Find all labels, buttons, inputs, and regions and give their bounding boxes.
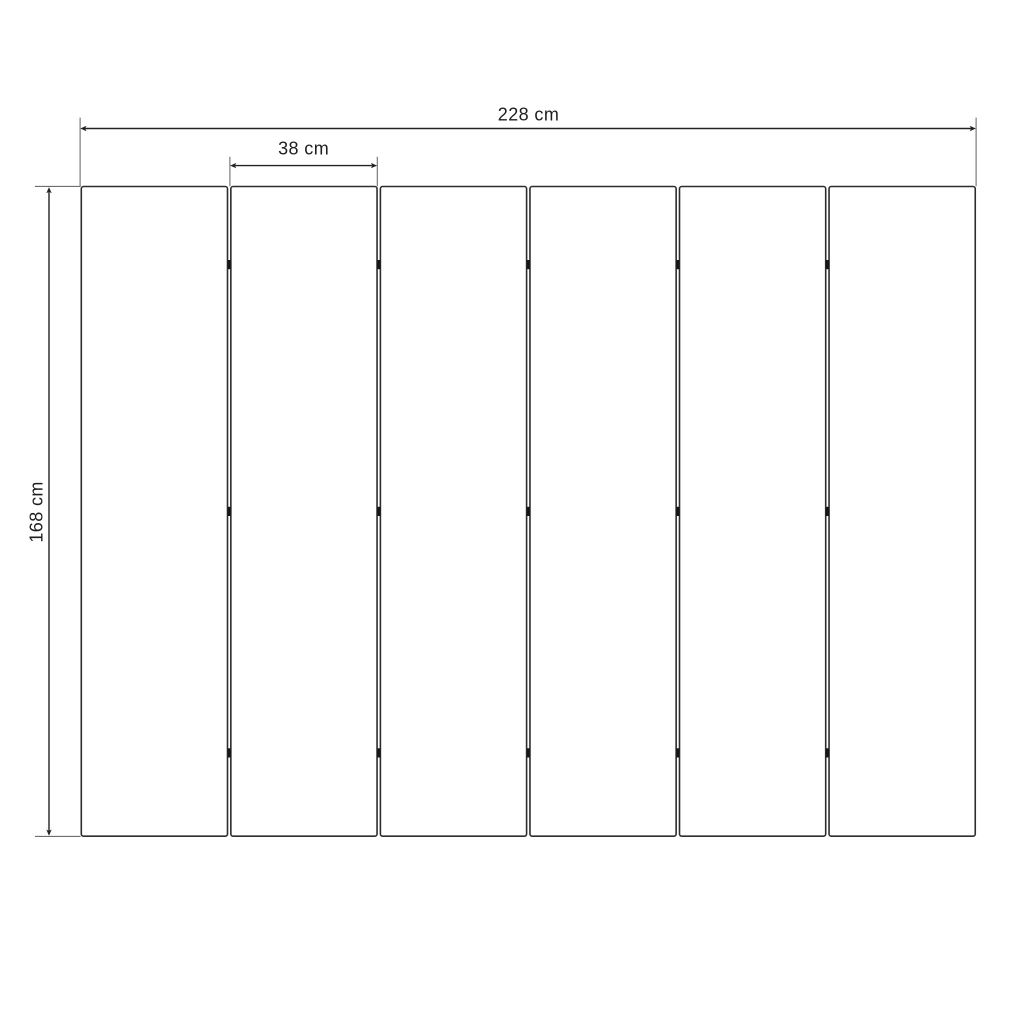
svg-text:168 cm: 168 cm xyxy=(27,481,47,542)
svg-text:38 cm: 38 cm xyxy=(278,139,329,159)
svg-text:228 cm: 228 cm xyxy=(498,104,559,124)
